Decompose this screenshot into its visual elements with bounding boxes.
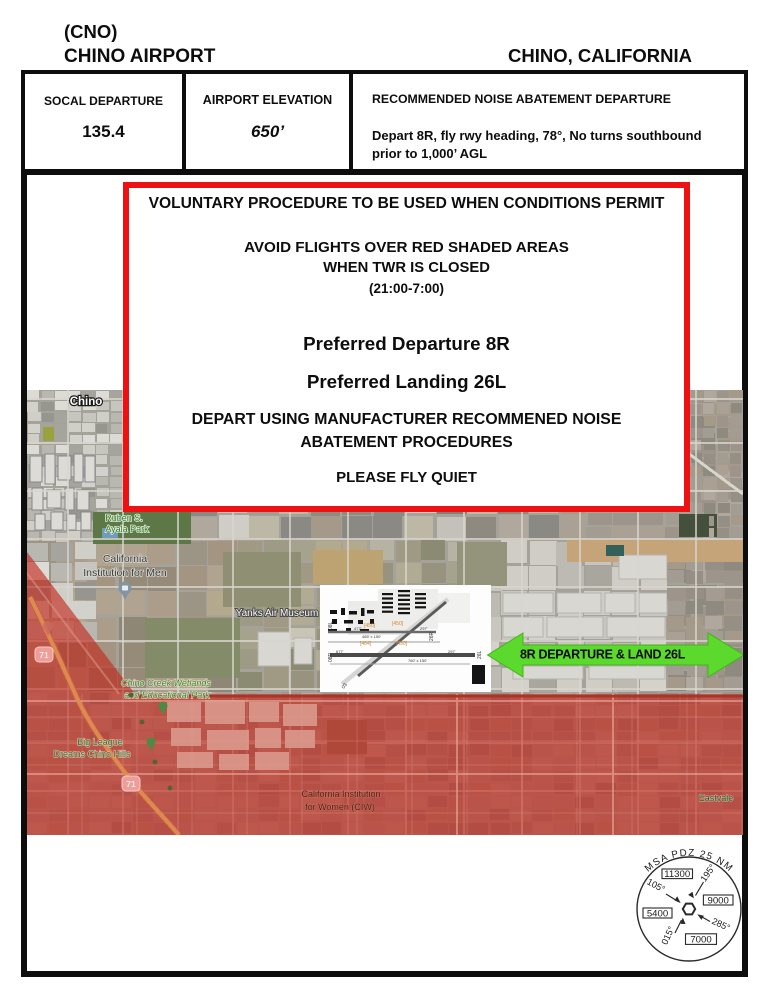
svg-text:015°: 015° <box>659 924 676 946</box>
svg-text:California Institution: California Institution <box>301 789 380 799</box>
svg-text:for Women (CIW): for Women (CIW) <box>305 802 375 812</box>
svg-text:and Educational Park: and Educational Park <box>124 690 210 700</box>
svg-text:California: California <box>103 553 148 565</box>
svg-text:285°: 285° <box>710 916 732 933</box>
svg-text:9000: 9000 <box>708 896 729 907</box>
svg-text:8R DEPARTURE & LAND 26L: 8R DEPARTURE & LAND 26L <box>520 648 686 662</box>
svg-text:Eastvale: Eastvale <box>699 793 734 803</box>
svg-text:477': 477' <box>354 626 362 631</box>
svg-text:26L: 26L <box>477 650 483 659</box>
svg-text:Institution for Men: Institution for Men <box>83 567 167 579</box>
svg-text:71: 71 <box>126 779 136 789</box>
svg-text:11300: 11300 <box>664 869 690 880</box>
svg-text:[450]: [450] <box>396 641 408 647</box>
svg-text:297': 297' <box>420 626 428 631</box>
svg-text:Ayala Park: Ayala Park <box>105 524 149 534</box>
svg-text:[450]: [450] <box>364 623 376 629</box>
svg-text:195°: 195° <box>698 862 717 884</box>
svg-text:5400: 5400 <box>647 909 668 920</box>
svg-text:677': 677' <box>336 649 344 654</box>
svg-text:Chino Creek Wetlands: Chino Creek Wetlands <box>121 678 211 688</box>
svg-text:[464]: [464] <box>360 641 372 647</box>
svg-text:71: 71 <box>39 650 49 660</box>
svg-text:Ruben S.: Ruben S. <box>105 513 143 523</box>
svg-text:08L: 08L <box>328 621 334 630</box>
svg-text:7000: 7000 <box>690 935 711 946</box>
svg-text:Chino: Chino <box>70 396 103 408</box>
svg-text:Dreams Chino Hills: Dreams Chino Hills <box>53 749 131 759</box>
svg-text:Big League: Big League <box>77 737 123 747</box>
svg-text:297': 297' <box>448 649 456 654</box>
svg-text:760' x 150': 760' x 150' <box>408 658 427 663</box>
svg-text:465' x 150': 465' x 150' <box>362 634 381 639</box>
svg-text:08R: 08R <box>328 652 334 662</box>
svg-text:26R: 26R <box>429 631 435 641</box>
svg-text:Yanks Air Museum: Yanks Air Museum <box>236 608 319 619</box>
svg-text:[450]: [450] <box>392 621 404 627</box>
